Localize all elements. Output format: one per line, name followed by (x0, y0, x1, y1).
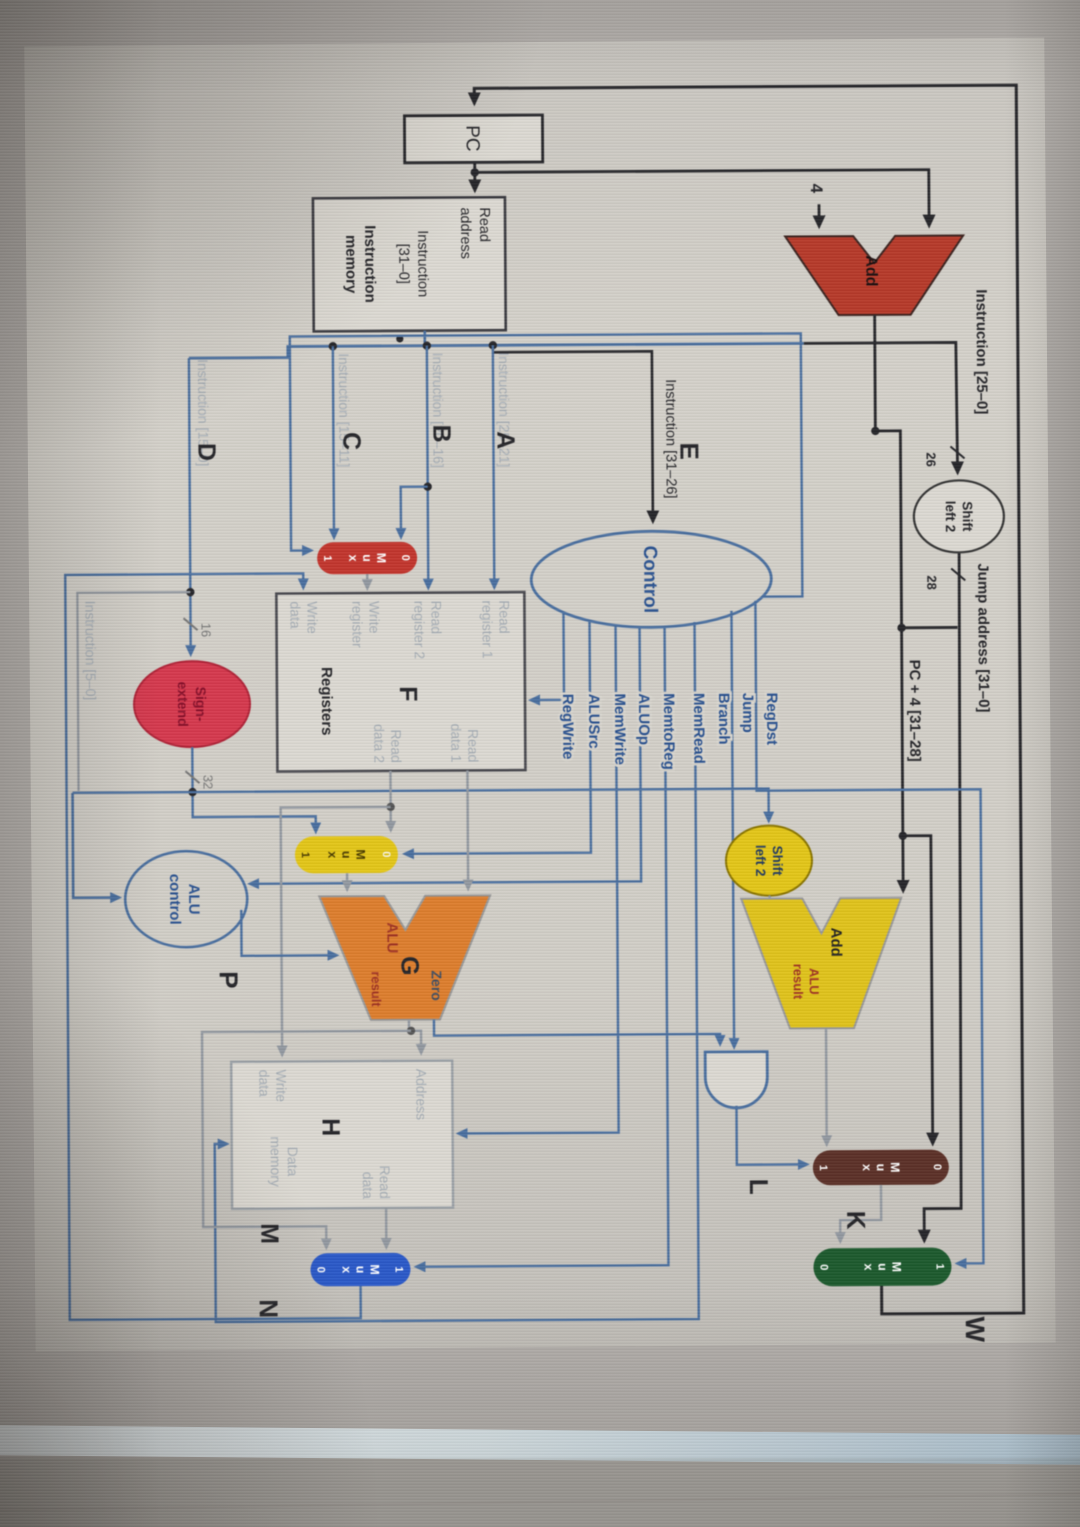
svg-text:data: data (287, 601, 303, 629)
svg-text:x: x (861, 1263, 875, 1270)
svg-text:Read: Read (388, 729, 404, 763)
svg-text:Write: Write (273, 1070, 289, 1103)
svg-text:F: F (394, 686, 422, 701)
svg-text:address: address (457, 207, 473, 259)
svg-text:MemtoReg: MemtoReg (660, 693, 677, 770)
svg-text:x: x (860, 1164, 874, 1171)
svg-text:0: 0 (399, 555, 411, 561)
svg-text:RegDst: RegDst (763, 693, 780, 746)
svg-text:Instruction [31–26]: Instruction [31–26] (662, 379, 679, 498)
svg-text:u: u (874, 1164, 888, 1172)
svg-text:register 1: register 1 (479, 600, 495, 659)
svg-text:[31–0]: [31–0] (395, 244, 411, 284)
svg-text:u: u (360, 554, 374, 562)
svg-text:data 2: data 2 (371, 724, 387, 763)
svg-text:Instruction [20–16]: Instruction [20–16] (430, 353, 447, 468)
svg-text:N: N (254, 1299, 284, 1318)
svg-text:left 2: left 2 (943, 501, 958, 533)
svg-text:16: 16 (199, 623, 214, 638)
svg-text:0: 0 (380, 851, 392, 857)
svg-text:32: 32 (200, 775, 215, 790)
svg-text:W: W (960, 1317, 990, 1343)
svg-text:extend: extend (175, 682, 191, 727)
svg-text:0: 0 (314, 1267, 326, 1273)
svg-text:Instruction [25–0]: Instruction [25–0] (972, 289, 990, 414)
svg-text:L: L (744, 1179, 774, 1195)
svg-text:M: M (255, 1223, 283, 1244)
svg-text:Jump address [31–0]: Jump address [31–0] (974, 563, 992, 712)
svg-text:Read: Read (377, 1165, 393, 1199)
svg-text:C: C (337, 432, 365, 450)
svg-text:Address: Address (413, 1069, 429, 1120)
svg-text:control: control (166, 874, 183, 925)
svg-text:1: 1 (392, 1266, 404, 1272)
svg-text:data: data (360, 1172, 376, 1200)
svg-text:M: M (374, 553, 388, 564)
svg-text:Jump: Jump (739, 693, 756, 733)
svg-text:left 2: left 2 (753, 845, 768, 877)
svg-text:MemRead: MemRead (690, 693, 707, 764)
svg-text:RegWrite: RegWrite (559, 694, 576, 760)
svg-text:u: u (339, 851, 353, 859)
svg-text:Branch: Branch (715, 693, 732, 745)
svg-text:x: x (339, 1266, 353, 1273)
svg-text:Read: Read (428, 601, 444, 635)
svg-text:ALUOp: ALUOp (635, 693, 652, 745)
svg-text:K: K (841, 1211, 871, 1230)
svg-text:E: E (674, 442, 704, 460)
svg-text:D: D (192, 443, 220, 461)
svg-text:Read: Read (476, 207, 492, 242)
svg-text:ALU: ALU (185, 884, 202, 915)
svg-text:ALU: ALU (383, 922, 400, 953)
svg-text:M: M (367, 1264, 381, 1275)
svg-text:ALUSrc: ALUSrc (585, 694, 602, 749)
svg-text:u: u (353, 1266, 367, 1274)
svg-text:Zero: Zero (429, 970, 445, 1000)
svg-text:x: x (346, 555, 360, 562)
svg-text:ALU: ALU (807, 968, 822, 995)
svg-text:result: result (791, 964, 806, 1000)
svg-text:1: 1 (933, 1263, 945, 1269)
svg-text:P: P (214, 971, 244, 989)
svg-text:Add: Add (827, 928, 844, 957)
svg-text:1: 1 (321, 555, 333, 561)
svg-text:1: 1 (299, 852, 311, 858)
svg-text:memory: memory (342, 235, 359, 294)
svg-text:0: 0 (931, 1164, 943, 1170)
svg-text:Read: Read (465, 729, 481, 763)
svg-text:Registers: Registers (318, 667, 335, 735)
svg-text:M: M (888, 1162, 902, 1173)
svg-text:result: result (369, 971, 384, 1007)
svg-text:Shift: Shift (770, 846, 785, 877)
svg-text:Instruction: Instruction (361, 225, 378, 303)
svg-text:register 2: register 2 (411, 601, 427, 660)
svg-text:Instruction: Instruction (414, 230, 430, 297)
svg-text:memory: memory (268, 1136, 284, 1187)
svg-text:PC: PC (461, 125, 482, 152)
svg-text:0: 0 (817, 1264, 829, 1270)
svg-text:G: G (396, 956, 424, 976)
svg-text:28: 28 (924, 575, 939, 590)
svg-text:Sign-: Sign- (193, 687, 209, 722)
svg-text:H: H (317, 1118, 345, 1136)
svg-text:M: M (889, 1262, 903, 1273)
svg-text:data 1: data 1 (448, 724, 464, 763)
svg-text:4: 4 (807, 184, 826, 194)
svg-text:Instruction [25–21]: Instruction [25–21] (496, 352, 513, 467)
svg-text:MemWrite: MemWrite (611, 693, 628, 765)
svg-text:u: u (875, 1263, 889, 1271)
svg-text:Control: Control (639, 545, 660, 613)
svg-text:B: B (427, 424, 455, 442)
svg-text:Data: Data (285, 1147, 301, 1177)
svg-text:26: 26 (923, 452, 938, 467)
svg-text:register: register (349, 601, 365, 648)
svg-text:data: data (256, 1070, 272, 1098)
svg-text:Write: Write (366, 601, 382, 634)
svg-text:Add: Add (862, 255, 879, 286)
svg-text:M: M (353, 849, 367, 860)
svg-text:A: A (491, 431, 519, 449)
svg-text:Read: Read (496, 600, 512, 634)
svg-text:Write: Write (304, 601, 320, 634)
svg-text:PC + 4 [31–28]: PC + 4 [31–28] (906, 660, 924, 762)
svg-text:x: x (325, 851, 339, 858)
svg-text:1: 1 (817, 1165, 829, 1171)
svg-text:Shift: Shift (960, 501, 975, 532)
svg-text:Instruction [5–0]: Instruction [5–0] (82, 601, 99, 701)
